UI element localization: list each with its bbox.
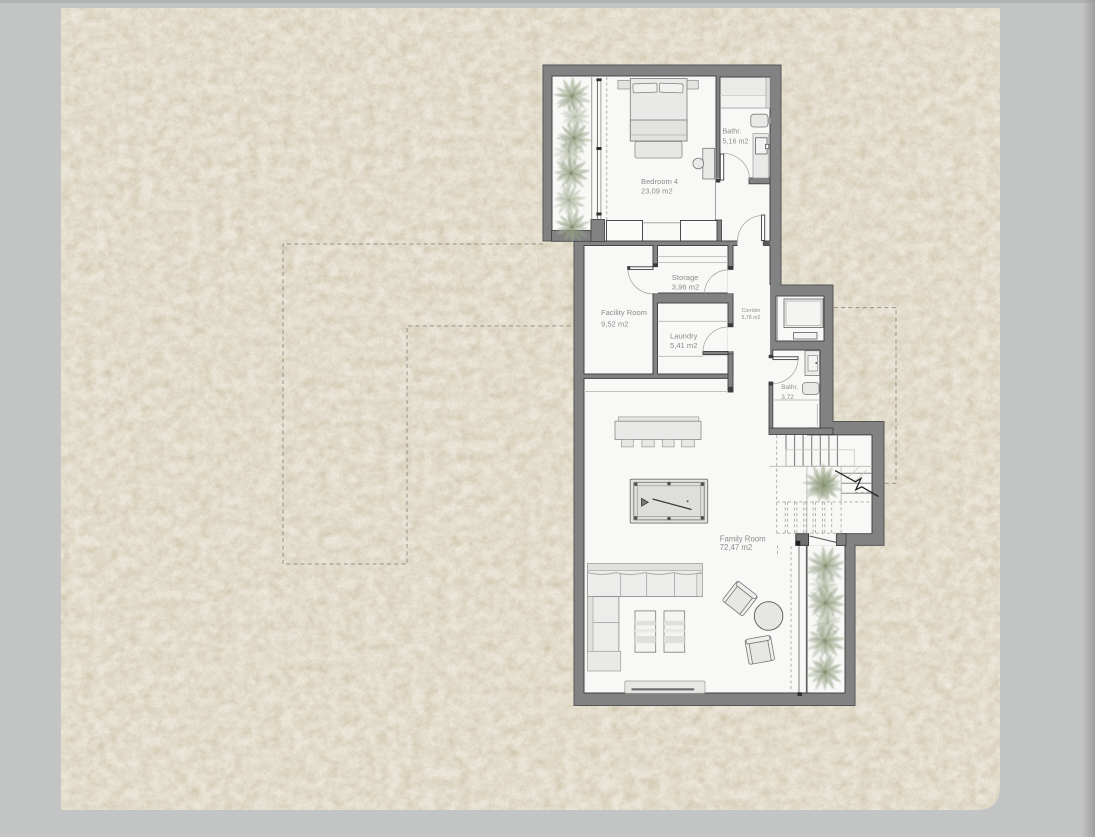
svg-text:72,47 m2: 72,47 m2	[720, 543, 753, 552]
svg-text:Storage: Storage	[672, 273, 699, 282]
svg-text:5,78 m2: 5,78 m2	[742, 315, 761, 321]
svg-text:Family Room: Family Room	[720, 534, 766, 543]
svg-text:5,16 m2: 5,16 m2	[723, 137, 749, 146]
svg-text:Bathr.: Bathr.	[723, 127, 742, 136]
svg-text:3,96 m2: 3,96 m2	[672, 283, 699, 292]
svg-text:Bedroom 4: Bedroom 4	[641, 177, 678, 186]
svg-text:Corridor: Corridor	[742, 308, 761, 314]
svg-text:23,09 m2: 23,09 m2	[641, 187, 673, 196]
svg-text:Laundry: Laundry	[670, 332, 698, 341]
svg-text:9,52 m2: 9,52 m2	[601, 320, 628, 329]
svg-text:Facility Room: Facility Room	[601, 308, 647, 317]
svg-text:5,41 m2: 5,41 m2	[670, 341, 697, 350]
svg-text:3,72: 3,72	[781, 394, 794, 401]
svg-text:Bathr.: Bathr.	[781, 384, 798, 391]
